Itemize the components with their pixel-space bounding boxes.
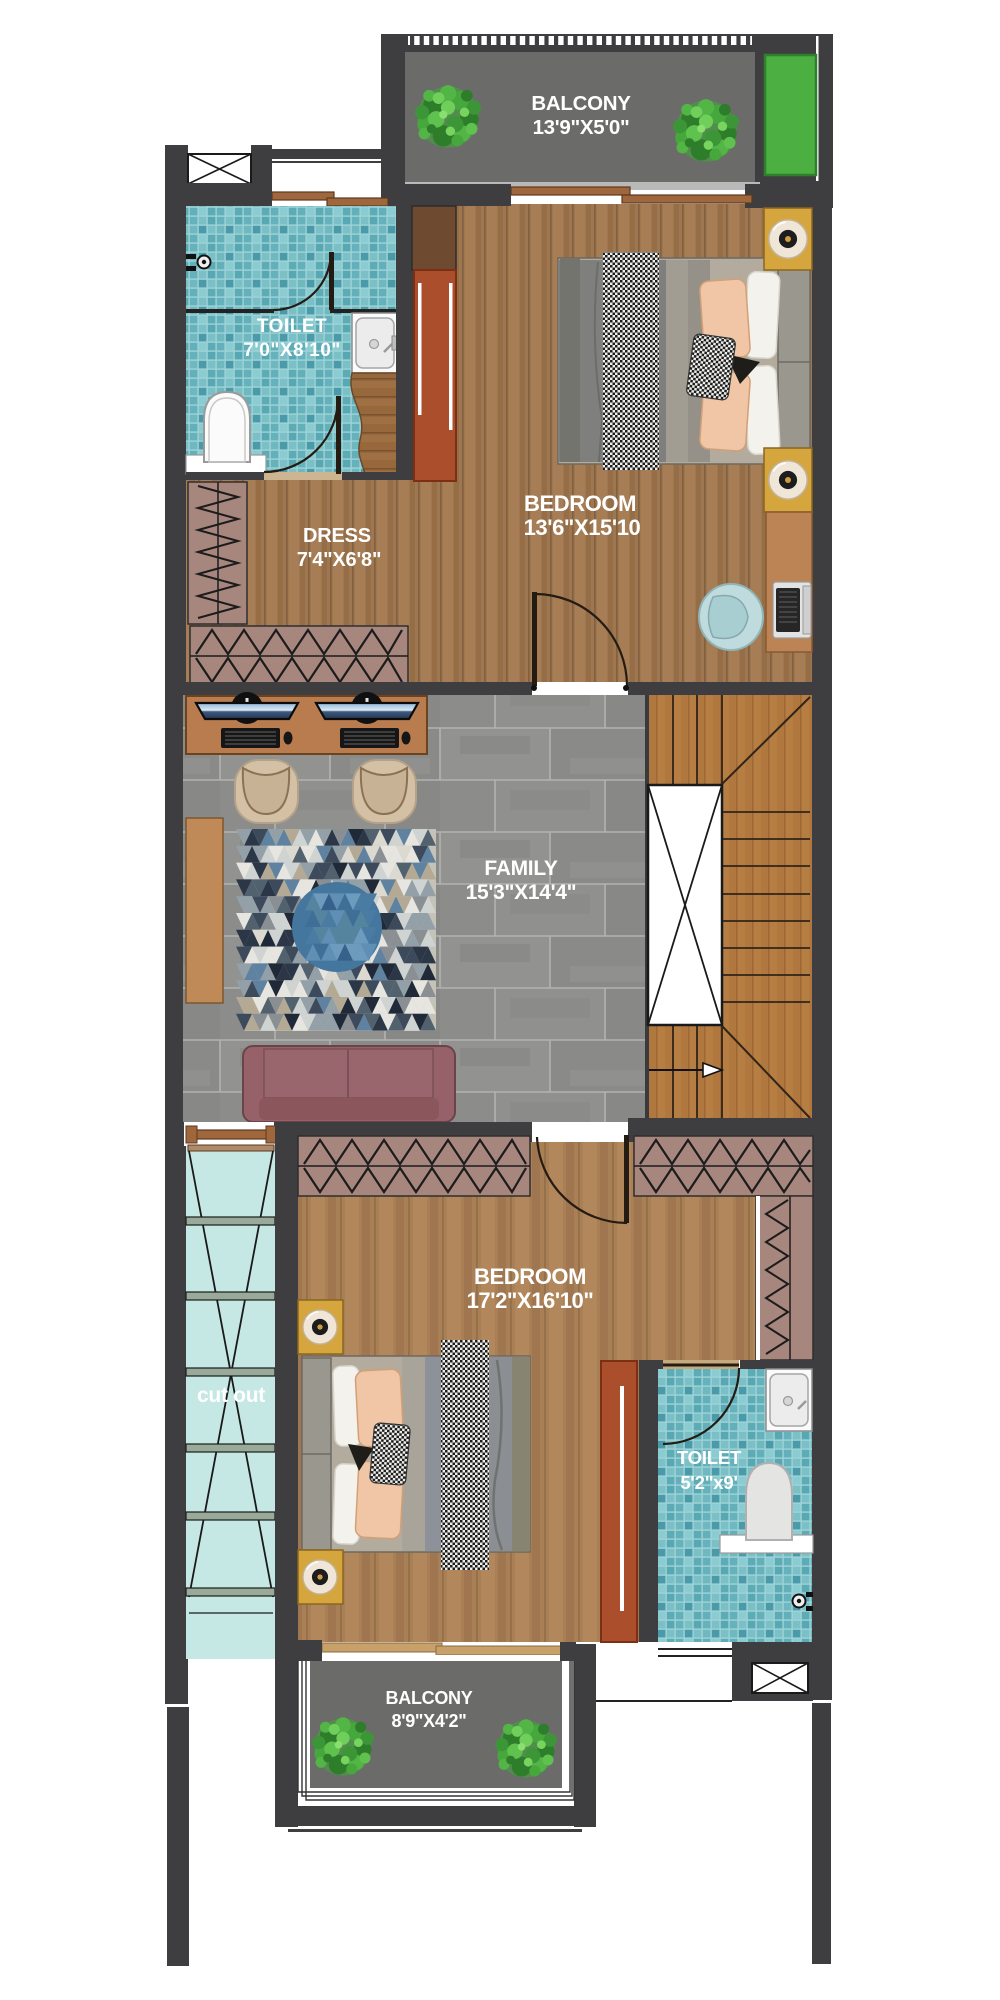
svg-text:13'9"X5'0": 13'9"X5'0" [533, 116, 630, 139]
svg-text:BEDROOM: BEDROOM [524, 491, 636, 516]
svg-text:17'2"X16'10": 17'2"X16'10" [467, 1288, 594, 1313]
svg-text:cut out: cut out [197, 1384, 265, 1407]
svg-text:5'2"x9': 5'2"x9' [680, 1472, 737, 1493]
svg-text:8'9"X4'2": 8'9"X4'2" [392, 1711, 467, 1731]
svg-text:FAMILY: FAMILY [484, 857, 558, 880]
svg-text:7'0"X8'10": 7'0"X8'10" [243, 340, 341, 361]
svg-text:15'3"X14'4": 15'3"X14'4" [466, 881, 577, 904]
svg-text:TOILET: TOILET [257, 316, 327, 337]
svg-text:BEDROOM: BEDROOM [474, 1264, 586, 1289]
svg-text:BALCONY: BALCONY [531, 92, 631, 115]
svg-text:TOILET: TOILET [677, 1447, 742, 1468]
svg-text:DRESS: DRESS [303, 525, 371, 547]
svg-text:BALCONY: BALCONY [386, 1688, 473, 1708]
svg-text:13'6"X15'10: 13'6"X15'10 [524, 515, 641, 540]
svg-text:7'4"X6'8": 7'4"X6'8" [297, 549, 382, 571]
